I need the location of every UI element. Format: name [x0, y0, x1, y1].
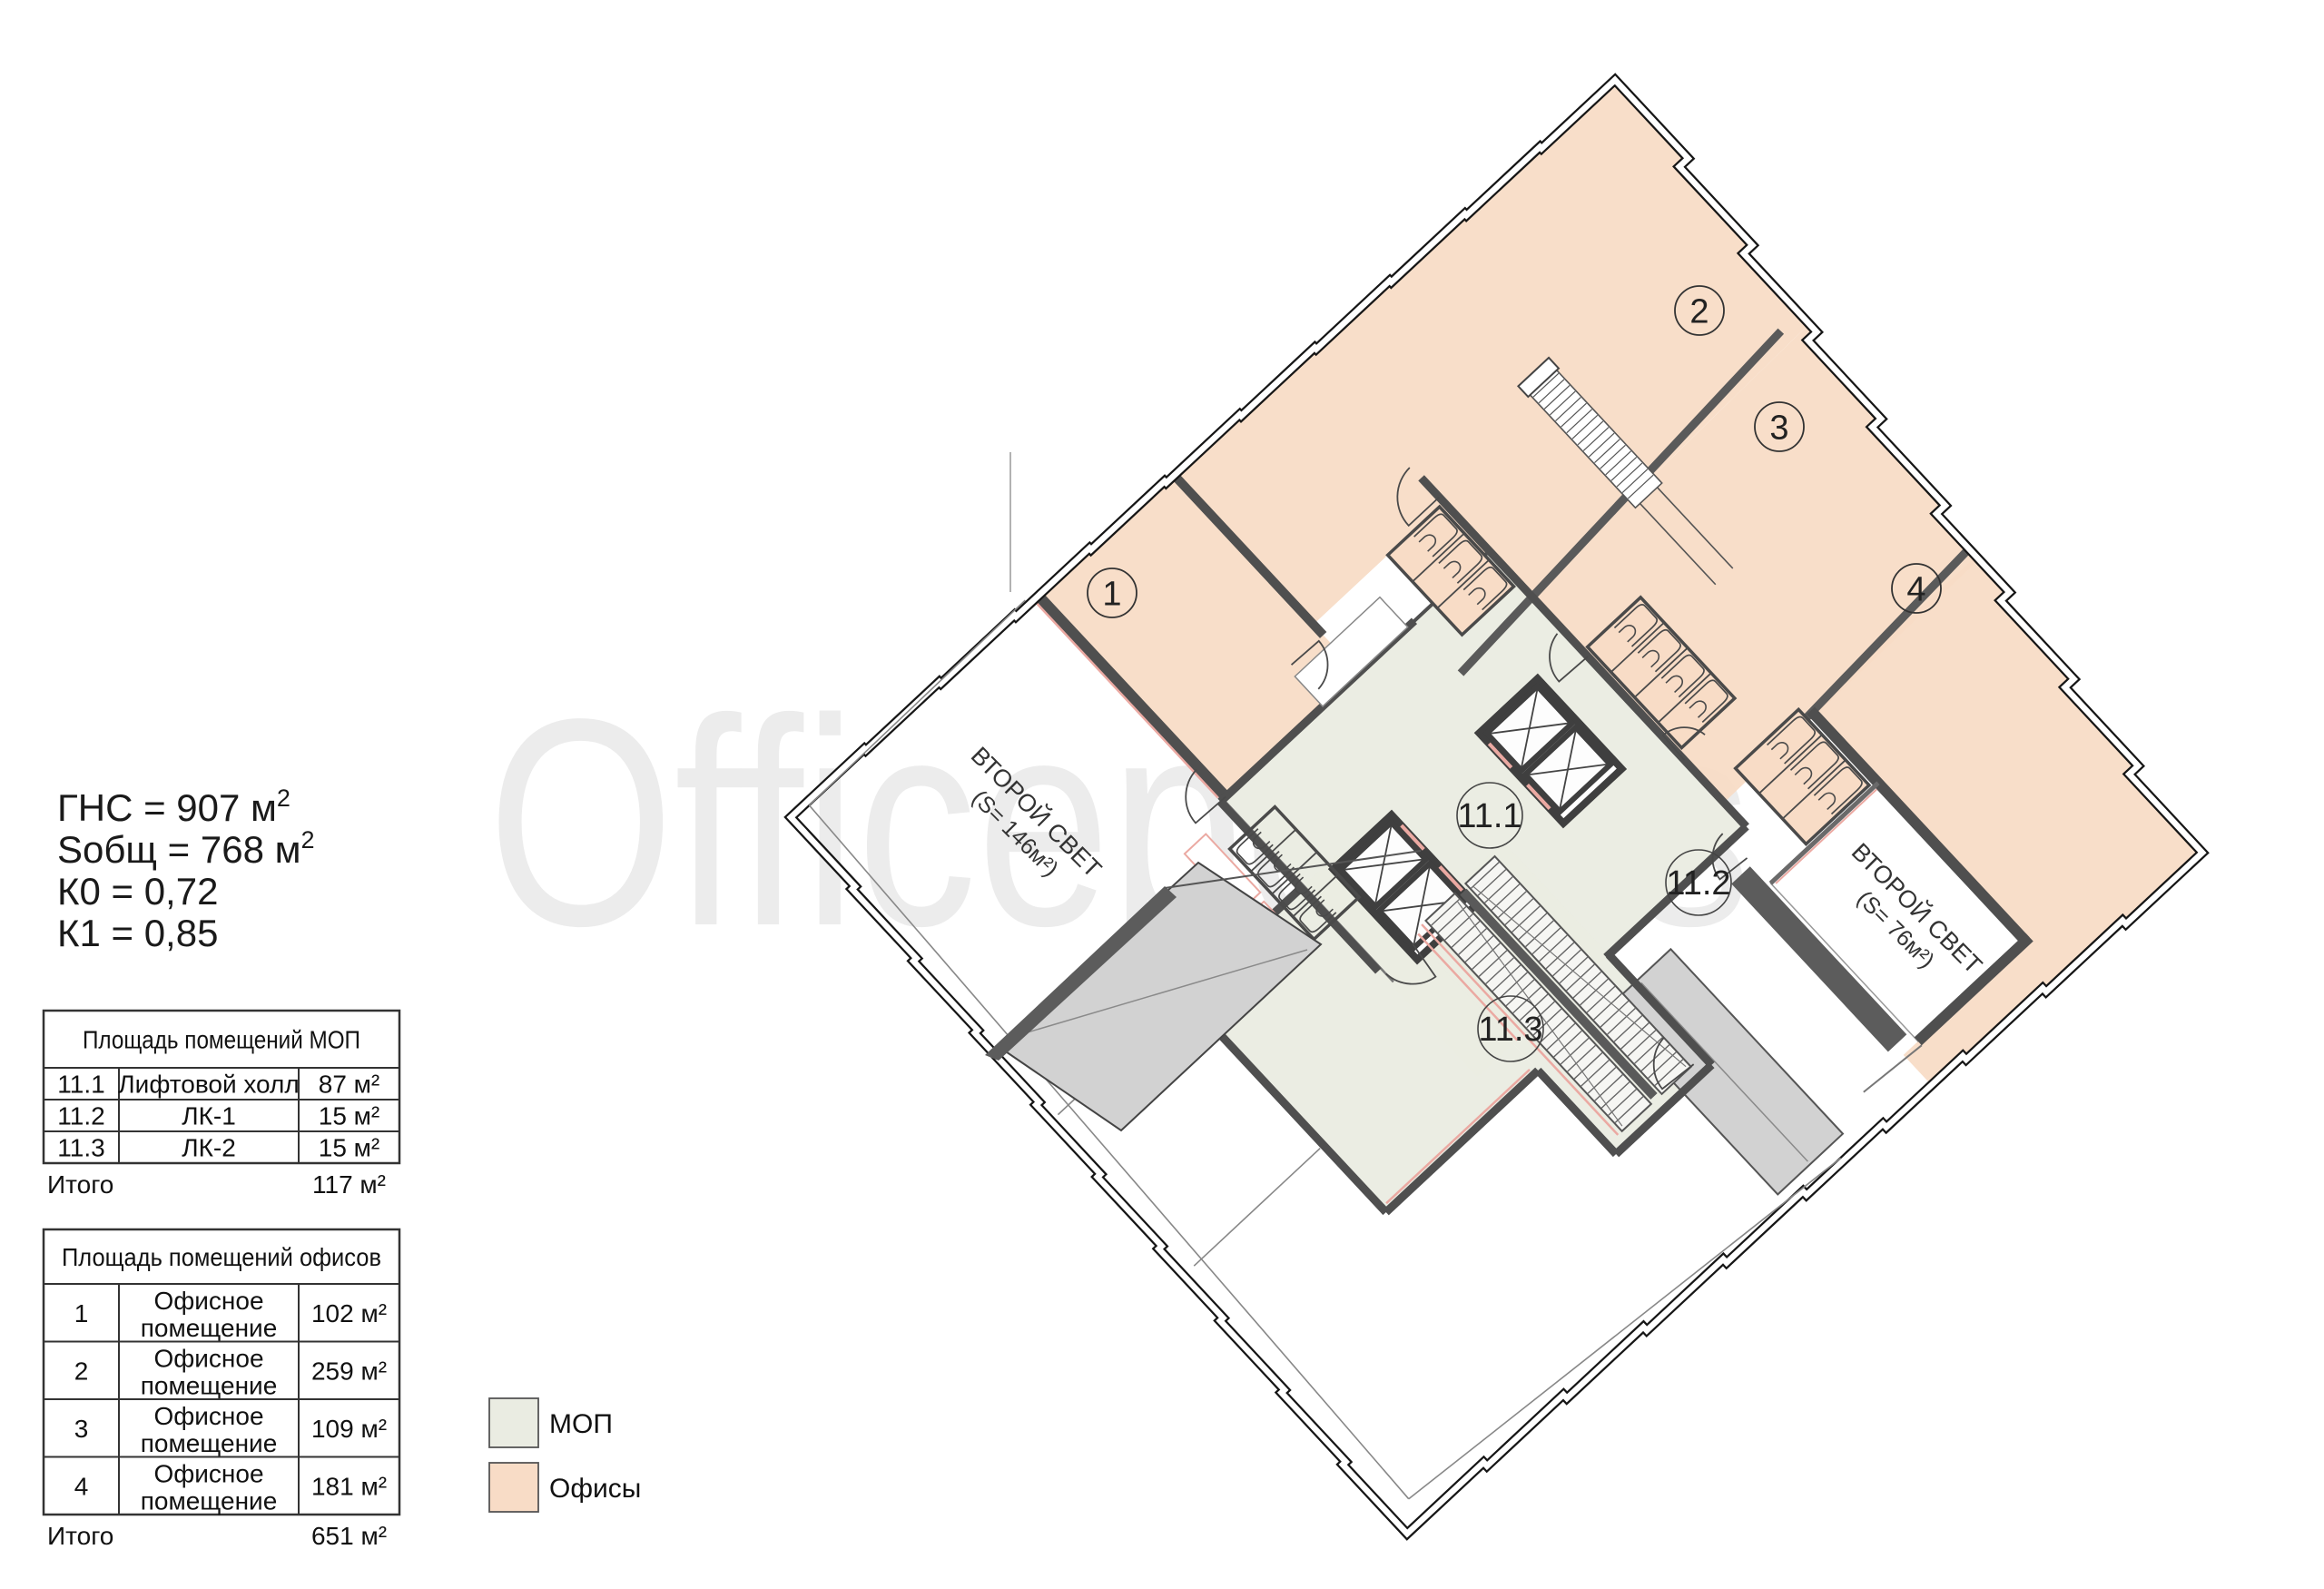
svg-text:11.3: 11.3 — [1478, 1011, 1542, 1049]
svg-text:11.1: 11.1 — [57, 1071, 104, 1099]
svg-text:102 м²: 102 м² — [311, 1299, 387, 1327]
svg-text:11.2: 11.2 — [57, 1102, 104, 1130]
svg-text:1: 1 — [1102, 576, 1121, 614]
svg-text:109 м²: 109 м² — [311, 1415, 387, 1443]
svg-text:11.3: 11.3 — [57, 1134, 104, 1162]
svg-text:МОП: МОП — [549, 1409, 613, 1439]
svg-text:15 м²: 15 м² — [319, 1134, 380, 1162]
svg-text:15 м²: 15 м² — [319, 1102, 380, 1130]
svg-text:К0 = 0,72: К0 = 0,72 — [57, 870, 218, 913]
svg-text:117 м²: 117 м² — [312, 1170, 386, 1199]
svg-text:Офисное: Офисное — [153, 1402, 263, 1430]
svg-text:Площадь помещений офисов: Площадь помещений офисов — [62, 1243, 381, 1271]
svg-text:Итого: Итого — [47, 1170, 113, 1199]
svg-text:11.1: 11.1 — [1457, 797, 1521, 835]
svg-text:259 м²: 259 м² — [311, 1357, 387, 1385]
svg-text:2: 2 — [1689, 293, 1709, 331]
svg-text:Офисное: Офисное — [153, 1459, 263, 1487]
svg-text:Площадь помещений МОП: Площадь помещений МОП — [83, 1026, 360, 1054]
svg-text:4: 4 — [1906, 571, 1925, 609]
svg-text:3: 3 — [1769, 410, 1788, 448]
svg-text:Офисы: Офисы — [549, 1474, 641, 1504]
svg-text:Итого: Итого — [47, 1522, 113, 1550]
svg-text:ГНС = 907 м2: ГНС = 907 м2 — [57, 785, 290, 829]
svg-text:1: 1 — [74, 1299, 89, 1327]
svg-text:помещение: помещение — [141, 1371, 278, 1399]
svg-text:2: 2 — [74, 1357, 89, 1385]
svg-text:11.2: 11.2 — [1666, 864, 1730, 903]
svg-text:К1 = 0,85: К1 = 0,85 — [57, 912, 218, 954]
svg-text:ЛК-1: ЛК-1 — [182, 1102, 236, 1130]
svg-text:3: 3 — [74, 1415, 89, 1443]
svg-text:помещение: помещение — [141, 1486, 278, 1515]
svg-text:помещение: помещение — [141, 1314, 278, 1342]
svg-text:ЛК-2: ЛК-2 — [182, 1134, 236, 1162]
svg-text:651 м²: 651 м² — [311, 1522, 387, 1550]
svg-text:Лифтовой холл: Лифтовой холл — [118, 1071, 299, 1099]
svg-text:помещение: помещение — [141, 1429, 278, 1457]
svg-text:Sобщ = 768 м2: Sобщ = 768 м2 — [57, 826, 315, 871]
svg-text:Офисное: Офисное — [153, 1344, 263, 1372]
svg-text:4: 4 — [74, 1472, 89, 1500]
svg-text:Офисное: Офисное — [153, 1287, 263, 1315]
svg-text:87 м²: 87 м² — [319, 1071, 380, 1099]
svg-text:181 м²: 181 м² — [311, 1472, 387, 1500]
